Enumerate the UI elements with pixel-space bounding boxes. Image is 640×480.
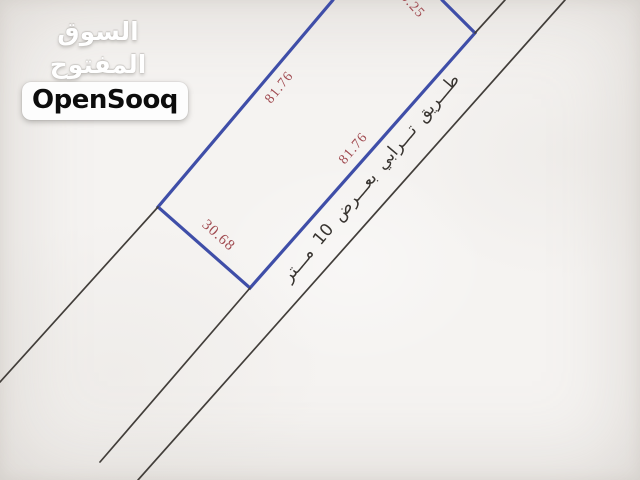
opensooq-brand-text: OpenSooq xyxy=(32,85,178,115)
road-right-edge-line xyxy=(138,0,565,480)
road-left-edge-lower-line xyxy=(100,288,250,462)
opensooq-brand-pill: OpenSooq xyxy=(22,82,188,120)
opensooq-arabic-logo: السوق المفتوح xyxy=(22,16,174,81)
survey-sketch-photo: 0.25 81.76 81.76 30.68 طـــريق تـــرابي … xyxy=(0,0,640,480)
block-boundary-extension-line xyxy=(0,207,158,382)
opensooq-watermark: السوق المفتوح OpenSooq xyxy=(22,16,174,120)
road-left-edge-upper-line xyxy=(475,0,505,33)
